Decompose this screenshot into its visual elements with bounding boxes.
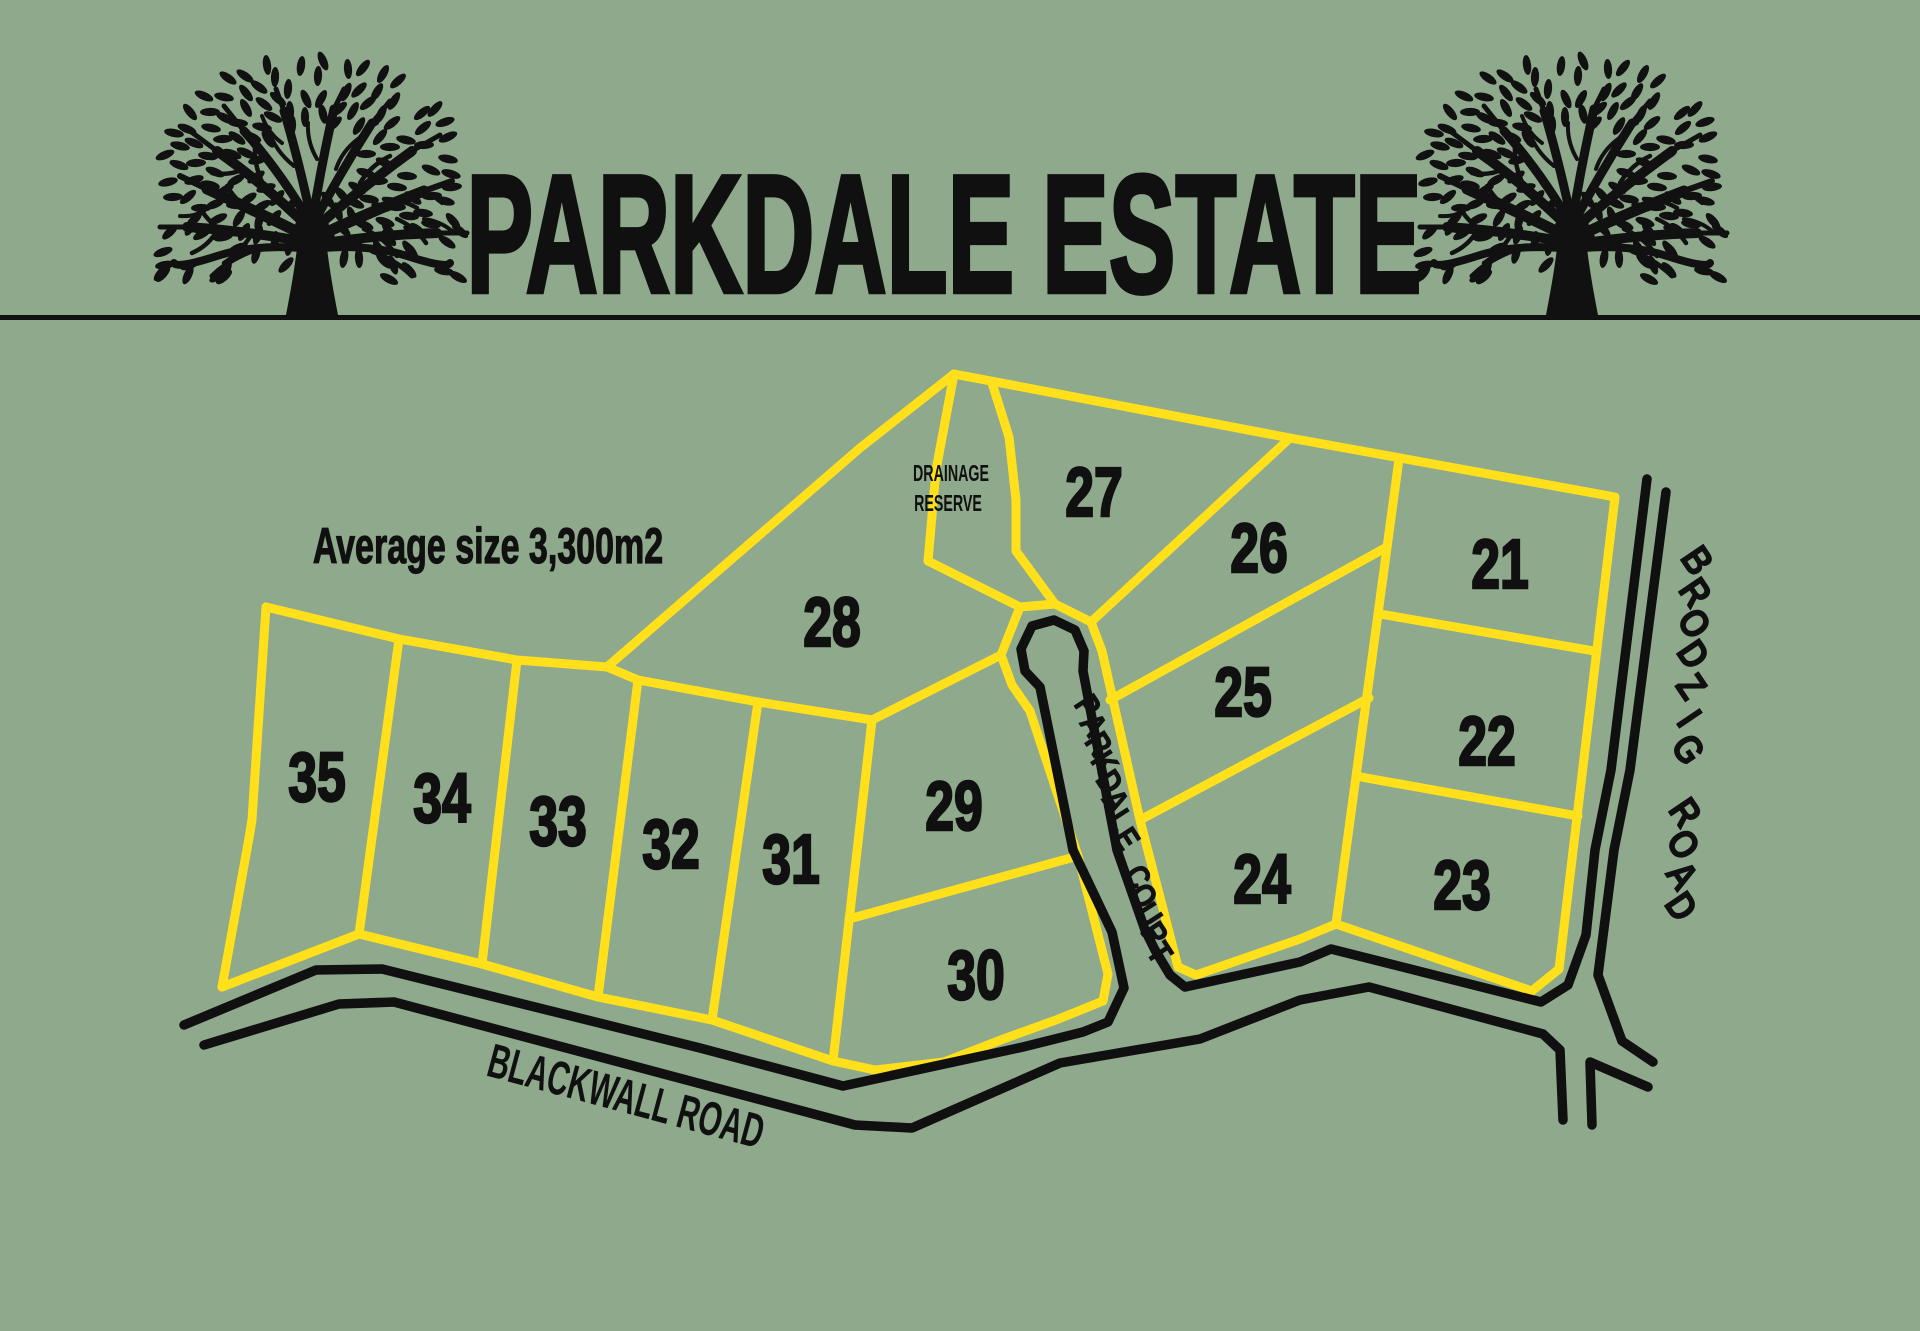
svg-text:RESERVE: RESERVE: [914, 492, 982, 517]
svg-text:22: 22: [1458, 702, 1516, 780]
svg-text:34: 34: [413, 759, 471, 837]
svg-text:21: 21: [1471, 525, 1529, 603]
svg-text:29: 29: [925, 767, 983, 845]
svg-text:33: 33: [529, 782, 587, 860]
svg-text:DRAINAGE: DRAINAGE: [913, 462, 989, 487]
svg-text:35: 35: [288, 738, 346, 816]
svg-text:24: 24: [1233, 840, 1291, 918]
svg-text:Average size 3,300m2: Average size 3,300m2: [313, 519, 663, 575]
svg-text:32: 32: [642, 805, 700, 883]
svg-text:23: 23: [1433, 846, 1491, 924]
svg-text:26: 26: [1230, 509, 1288, 587]
svg-text:31: 31: [762, 820, 820, 898]
svg-text:PARKDALE ESTATE: PARKDALE ESTATE: [466, 141, 1421, 328]
svg-text:27: 27: [1065, 453, 1123, 531]
svg-text:25: 25: [1214, 653, 1272, 731]
svg-text:28: 28: [803, 583, 861, 661]
svg-text:30: 30: [947, 936, 1005, 1014]
